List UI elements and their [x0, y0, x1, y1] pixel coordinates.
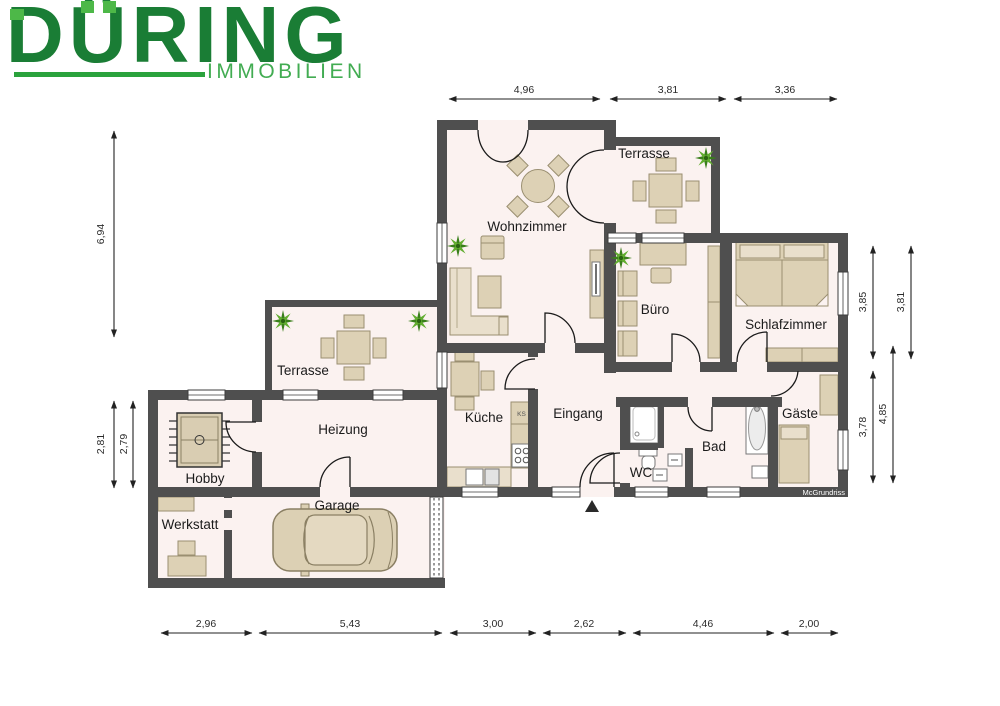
- sideboard: [766, 348, 838, 362]
- shower: [630, 404, 658, 443]
- room-label-schlafzimmer: Schlafzimmer: [745, 317, 827, 332]
- dimension-bottom-6: 2,00: [799, 618, 820, 630]
- workbench: [158, 497, 194, 511]
- room-label-wc: WC: [630, 465, 653, 480]
- office-chairs: [618, 271, 637, 356]
- dimension-right-2: 3,81: [895, 292, 907, 313]
- floor-plan-drawing: Wohnzimmer Terrasse Büro Schlafzimmer Te…: [0, 0, 1000, 706]
- guest-bed: [779, 425, 809, 483]
- dimension-left-3: 2,79: [118, 434, 130, 455]
- bathtub: [746, 402, 768, 454]
- dimension-right-1: 3,85: [857, 292, 869, 313]
- dimension-bottom-5: 4,46: [693, 618, 714, 630]
- room-label-terrasse-left: Terrasse: [277, 363, 329, 378]
- coffee-table: [478, 276, 501, 308]
- dimension-top-2: 3,81: [658, 84, 679, 96]
- dimension-bottom-2: 5,43: [340, 618, 361, 630]
- kitchen-sink: [466, 469, 499, 485]
- washbasin: [752, 466, 768, 478]
- dimension-left-2: 2,81: [95, 434, 107, 455]
- garage-door: [430, 497, 443, 578]
- dimension-bottom-3: 3,00: [483, 618, 504, 630]
- watermark-text: McGrundriss: [802, 488, 845, 497]
- dimension-top-1: 4,96: [514, 84, 535, 96]
- dimension-top-3: 3,36: [775, 84, 796, 96]
- room-label-eingang: Eingang: [553, 406, 603, 421]
- dimension-right-3: 3,78: [857, 417, 869, 438]
- room-label-bad: Bad: [702, 439, 726, 454]
- dimension-bottom-4: 2,62: [574, 618, 595, 630]
- tv-cabinet: [590, 250, 604, 318]
- room-label-kueche: Küche: [465, 410, 503, 425]
- floor-areas: [148, 120, 848, 588]
- room-label-buero: Büro: [641, 302, 670, 317]
- room-label-werkstatt: Werkstatt: [162, 517, 219, 532]
- room-label-heizung: Heizung: [318, 422, 368, 437]
- car-icon: [273, 504, 397, 576]
- double-bed: [736, 242, 828, 306]
- label-ks-fridge: KS: [517, 411, 526, 418]
- room-label-gaeste: Gäste: [782, 406, 818, 421]
- floor-plan-page: DÜRING IMMOBILIEN: [0, 0, 1000, 706]
- dimension-bottom-1: 2,96: [196, 618, 217, 630]
- north-arrow-icon: [585, 500, 599, 512]
- dimension-right-4: 4,85: [877, 404, 889, 425]
- armchair: [481, 236, 504, 259]
- room-label-wohnzimmer: Wohnzimmer: [487, 219, 567, 234]
- room-label-garage: Garage: [314, 498, 359, 513]
- foosball-table: [169, 413, 230, 467]
- room-label-hobby: Hobby: [185, 471, 224, 486]
- wardrobe: [708, 246, 720, 358]
- dimension-left-1: 6,94: [95, 224, 107, 245]
- room-label-terrasse-top: Terrasse: [618, 146, 670, 161]
- guest-wardrobe: [820, 375, 838, 415]
